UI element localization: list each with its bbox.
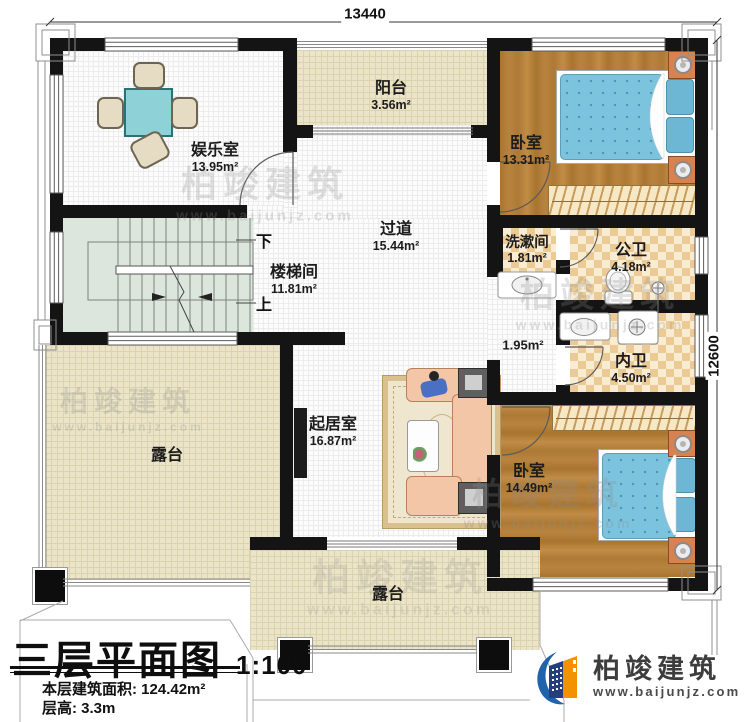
room-label-lobby-area: 1.95m² xyxy=(502,339,543,354)
room-label-bedroom-bottom: 卧室14.49m² xyxy=(506,463,553,495)
brand-logo: 柏竣建筑 www.baijunjz.com xyxy=(533,648,740,706)
chair-right xyxy=(171,97,198,129)
floor-corridor-upper xyxy=(297,125,487,218)
wall-left xyxy=(50,38,63,345)
room-label-terrace-left: 露台 xyxy=(151,447,183,465)
room-label-stairwell: 楼梯间11.81m² xyxy=(270,264,318,296)
wardrobe-top-bedroom xyxy=(548,185,697,216)
lamp-icon xyxy=(674,56,692,74)
wall-wash-left xyxy=(487,228,503,277)
person-head xyxy=(429,371,439,381)
bed-bottom-mattress xyxy=(602,453,676,539)
bed-bottom-pillow-1 xyxy=(670,458,696,493)
flower-decor xyxy=(413,447,431,465)
bed-bottom-pillow-2 xyxy=(670,497,696,532)
wall-living-bottom-r xyxy=(457,537,540,550)
wall-bath-bottom xyxy=(487,392,708,405)
title-underline-thin xyxy=(10,672,248,673)
lamp-icon xyxy=(674,435,692,453)
wall-top-left xyxy=(50,38,297,51)
bed-top-pillow-1 xyxy=(666,79,694,115)
wall-bath-top xyxy=(487,215,708,228)
lamp-icon xyxy=(674,542,692,560)
bed-top-mattress xyxy=(560,74,664,160)
dimension-width: 13440 xyxy=(341,6,389,23)
wall-stair-bottom xyxy=(50,332,345,345)
wall-living-bottom-l xyxy=(250,537,327,550)
room-label-private-bath: 内卫4.50m² xyxy=(611,353,651,385)
floor-entertainment-room xyxy=(63,51,283,205)
wall-balcony-stub-r xyxy=(471,125,487,138)
tv-unit xyxy=(294,408,307,478)
floor-area-text: 本层建筑面积: 124.42m² xyxy=(42,678,205,699)
wall-wash-pub-stub xyxy=(556,260,570,274)
room-label-washroom: 洗漱间1.81m² xyxy=(505,235,549,265)
floor-doorway-ent2 xyxy=(283,152,297,218)
floor-stairwell xyxy=(63,218,253,332)
nightstand-top-2 xyxy=(668,156,697,184)
floor-height-text: 层高: 3.3m xyxy=(42,697,115,718)
nightstand-bottom-1 xyxy=(668,430,697,457)
bed-top-pillow-2 xyxy=(666,117,694,153)
nightstand-bottom-2 xyxy=(668,537,697,564)
chair-left xyxy=(97,97,124,129)
stair-down-label: 下 xyxy=(256,228,272,252)
terrace-column-right xyxy=(477,638,511,672)
brand-url: www.baijunjz.com xyxy=(593,684,740,699)
wall-bedroom2-bottom xyxy=(487,578,708,591)
plan-scale: 1:100 xyxy=(236,650,308,680)
room-label-bedroom-top: 卧室13.31m² xyxy=(503,135,550,167)
wall-top-right xyxy=(487,38,708,51)
wall-ent-right xyxy=(283,38,297,152)
floor-plan-canvas: 柏竣建筑 www.baijunjz.com 柏竣建筑 www.baijunjz.… xyxy=(0,0,750,722)
room-label-corridor: 过道15.44m² xyxy=(373,221,420,253)
room-label-entertainment: 娱乐室13.95m² xyxy=(191,142,239,174)
terrace-column-left xyxy=(33,568,67,604)
wall-right xyxy=(695,38,708,591)
wall-lobby-left xyxy=(487,360,500,392)
wall-balcony-stub-l xyxy=(297,125,313,138)
room-label-public-bath: 公卫4.18m² xyxy=(611,242,651,274)
dimension-height: 12600 xyxy=(706,332,723,380)
wall-priv-left-b xyxy=(556,385,570,392)
nightstand-top-1 xyxy=(668,51,697,79)
wall-bath-mid xyxy=(556,300,708,313)
brand-logo-icon xyxy=(533,648,585,706)
chair-top xyxy=(133,62,165,89)
game-table xyxy=(124,88,173,137)
wardrobe-bottom-bedroom xyxy=(552,405,697,431)
title-underline-thick xyxy=(10,666,240,669)
side-table-top xyxy=(458,368,490,398)
lamp-icon xyxy=(674,161,692,179)
room-label-balcony: 阳台3.56m² xyxy=(371,80,411,112)
wall-bedroom2-left xyxy=(487,455,500,577)
wall-living-left xyxy=(280,345,293,537)
stair-up-label: 上 xyxy=(256,291,272,315)
room-label-terrace-bottom: 露台 xyxy=(372,586,404,604)
wall-ent-bottom xyxy=(50,205,247,218)
wall-priv-left-a xyxy=(556,313,570,345)
brand-name: 柏竣建筑 xyxy=(593,655,740,683)
wall-bedroom1-left xyxy=(487,38,500,162)
armchair-bottom xyxy=(406,476,462,516)
room-label-living: 起居室16.87m² xyxy=(309,416,357,448)
